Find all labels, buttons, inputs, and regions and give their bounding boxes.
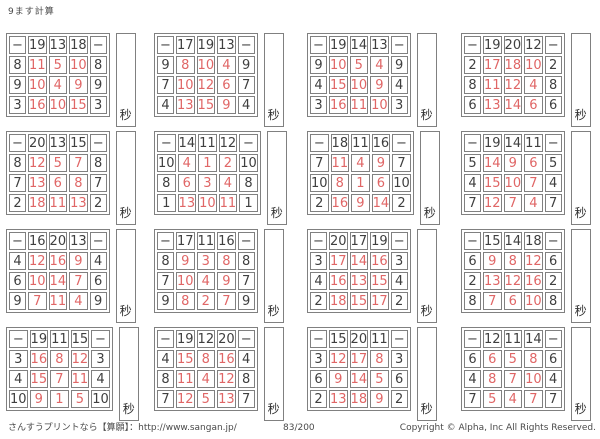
answer-cell: 6	[524, 154, 543, 172]
answer-cell: 13	[69, 194, 88, 212]
subtraction-table: −121114−6658648710475477	[461, 327, 565, 411]
given-number-cell: 3	[91, 350, 110, 368]
answer-cell: 12	[176, 390, 195, 408]
seconds-box: 秒	[571, 131, 591, 225]
answer-cell: 6	[372, 174, 391, 192]
minus-operator-cell: −	[391, 330, 408, 348]
footer-site-text: さんすうプリントなら【算願】：http://www.sangan.jp/	[8, 420, 237, 433]
seconds-box: 秒	[417, 229, 437, 323]
answer-cell: 5	[504, 350, 523, 368]
answer-cell: 12	[28, 252, 47, 270]
answer-cell: 9	[483, 252, 502, 270]
given-number-cell: 4	[310, 272, 327, 290]
answer-cell: 7	[217, 292, 236, 310]
seconds-label: 秒	[575, 106, 587, 123]
given-number-cell: 20	[350, 330, 369, 348]
answer-cell: 7	[69, 154, 88, 172]
answer-cell: 12	[504, 272, 523, 290]
answer-cell: 16	[28, 96, 47, 114]
seconds-label: 秒	[120, 204, 132, 221]
answer-cell: 6	[178, 174, 197, 192]
seconds-box: 秒	[267, 131, 287, 225]
answer-cell: 7	[483, 292, 502, 310]
answer-cell: 10	[350, 76, 369, 94]
minus-operator-cell: −	[157, 232, 174, 250]
answer-cell: 9	[504, 154, 523, 172]
answer-cell: 10	[49, 96, 68, 114]
given-number-cell: 11	[197, 232, 216, 250]
minus-operator-cell: −	[391, 36, 408, 54]
minus-operator-cell: −	[238, 36, 255, 54]
answer-cell: 10	[197, 56, 216, 74]
subtraction-table: −181116−71149710816102169142	[307, 131, 414, 215]
answer-cell: 18	[504, 56, 523, 74]
given-number-cell: 9	[9, 76, 26, 94]
given-number-cell: 13	[49, 36, 68, 54]
given-number-cell: 12	[197, 330, 216, 348]
answer-cell: 10	[198, 194, 217, 212]
given-number-cell: 8	[239, 174, 258, 192]
given-number-cell: 2	[310, 194, 329, 212]
answer-cell: 13	[483, 96, 502, 114]
answer-cell: 8	[524, 350, 543, 368]
answer-cell: 7	[524, 174, 543, 192]
minus-operator-cell: −	[310, 330, 327, 348]
given-number-cell: 19	[483, 36, 502, 54]
minus-operator-cell: −	[9, 232, 26, 250]
given-number-cell: 8	[545, 76, 562, 94]
answer-cell: 16	[30, 350, 49, 368]
answer-cell: 2	[197, 292, 216, 310]
answer-cell: 12	[71, 350, 90, 368]
seconds-box: 秒	[571, 327, 591, 421]
answer-cell: 14	[350, 370, 369, 388]
answer-cell: 7	[524, 390, 543, 408]
answer-cell: 4	[504, 390, 523, 408]
given-number-cell: 8	[157, 370, 174, 388]
given-number-cell: 18	[331, 134, 350, 152]
given-number-cell: 12	[483, 330, 502, 348]
answer-cell: 17	[329, 252, 348, 270]
answer-cell: 7	[504, 194, 523, 212]
page-number: 83/200	[283, 423, 315, 433]
given-number-cell: 17	[176, 36, 195, 54]
given-number-cell: 4	[238, 96, 255, 114]
given-number-cell: 6	[90, 272, 107, 290]
minus-operator-cell: −	[464, 36, 481, 54]
given-number-cell: 15	[69, 134, 88, 152]
given-number-cell: 2	[9, 194, 26, 212]
seconds-label: 秒	[424, 204, 436, 221]
answer-cell: 8	[370, 350, 389, 368]
given-number-cell: 19	[329, 36, 348, 54]
subtraction-table: −201315−81257871368721811132	[6, 131, 110, 215]
given-number-cell: 9	[157, 56, 174, 74]
given-number-cell: 4	[391, 76, 408, 94]
answer-cell: 8	[197, 350, 216, 368]
given-number-cell: 19	[176, 330, 195, 348]
given-number-cell: 4	[238, 350, 255, 368]
answer-cell: 10	[28, 272, 47, 290]
problem-block: −121114−6658648710475477秒	[461, 327, 600, 425]
answer-cell: 15	[483, 174, 502, 192]
answer-cell: 10	[524, 370, 543, 388]
minus-operator-cell: −	[157, 134, 176, 152]
minus-operator-cell: −	[9, 134, 26, 152]
given-number-cell: 7	[90, 174, 107, 192]
seconds-box: 秒	[264, 327, 284, 421]
minus-operator-cell: −	[90, 232, 107, 250]
answer-cell: 17	[483, 56, 502, 74]
given-number-cell: 14	[524, 330, 543, 348]
minus-operator-cell: −	[464, 232, 481, 250]
given-number-cell: 8	[464, 76, 481, 94]
given-number-cell: 7	[9, 174, 26, 192]
answer-cell: 13	[329, 390, 348, 408]
answer-cell: 4	[49, 76, 68, 94]
minus-operator-cell: −	[310, 36, 327, 54]
given-number-cell: 20	[28, 134, 47, 152]
problem-block: −191318−811510891049931610153秒	[6, 33, 154, 131]
answer-cell: 7	[69, 272, 88, 290]
given-number-cell: 3	[391, 350, 408, 368]
subtraction-table: −151418−69812621312162876108	[461, 229, 565, 313]
answer-cell: 8	[217, 252, 236, 270]
given-number-cell: 7	[238, 272, 255, 290]
given-number-cell: 11	[198, 134, 217, 152]
given-number-cell: 14	[504, 232, 523, 250]
given-number-cell: 9	[310, 56, 327, 74]
given-number-cell: 12	[524, 36, 543, 54]
given-number-cell: 6	[545, 350, 562, 368]
answer-cell: 1	[50, 390, 69, 408]
given-number-cell: 3	[310, 96, 327, 114]
given-number-cell: 16	[372, 134, 391, 152]
given-number-cell: 1	[239, 194, 258, 212]
seconds-box: 秒	[264, 33, 284, 127]
answer-cell: 11	[350, 96, 369, 114]
given-number-cell: 2	[464, 272, 481, 290]
given-number-cell: 15	[483, 232, 502, 250]
seconds-label: 秒	[575, 302, 587, 319]
minus-operator-cell: −	[157, 330, 174, 348]
given-number-cell: 2	[464, 56, 481, 74]
answer-cell: 7	[28, 292, 47, 310]
answer-cell: 11	[483, 76, 502, 94]
minus-operator-cell: −	[239, 134, 258, 152]
given-number-cell: 9	[391, 56, 408, 74]
answer-cell: 6	[504, 292, 523, 310]
answer-cell: 13	[350, 272, 369, 290]
seconds-label: 秒	[268, 302, 280, 319]
answer-cell: 12	[504, 76, 523, 94]
copyright-text: Copyright © Alpha, Inc All Rights Reserv…	[400, 423, 596, 433]
answer-cell: 10	[329, 56, 348, 74]
given-number-cell: 19	[30, 330, 49, 348]
seconds-label: 秒	[268, 106, 280, 123]
answer-cell: 14	[372, 194, 391, 212]
answer-cell: 5	[197, 390, 216, 408]
given-number-cell: 8	[90, 154, 107, 172]
answer-cell: 14	[483, 154, 502, 172]
answer-cell: 9	[351, 194, 370, 212]
answer-cell: 4	[197, 370, 216, 388]
problem-block: −191411−5149654151074712747秒	[461, 131, 600, 229]
answer-cell: 8	[331, 174, 350, 192]
given-number-cell: 4	[464, 370, 481, 388]
subtraction-table: −201719−317141634161315421815172	[307, 229, 411, 313]
answer-cell: 12	[217, 370, 236, 388]
answer-cell: 13	[217, 390, 236, 408]
answer-cell: 4	[524, 194, 543, 212]
given-number-cell: 20	[329, 232, 348, 250]
given-number-cell: 6	[545, 96, 562, 114]
given-number-cell: 14	[504, 134, 523, 152]
given-number-cell: 11	[524, 134, 543, 152]
given-number-cell: 10	[392, 174, 411, 192]
answer-cell: 16	[329, 96, 348, 114]
given-number-cell: 4	[9, 370, 28, 388]
subtraction-table: −141112−10412108634811310111	[154, 131, 261, 215]
answer-cell: 18	[329, 292, 348, 310]
minus-operator-cell: −	[91, 330, 110, 348]
answer-cell: 11	[49, 292, 68, 310]
answer-cell: 9	[30, 390, 49, 408]
answer-cell: 11	[219, 194, 238, 212]
subtraction-table: −152011−31217836914562131892	[307, 327, 411, 411]
given-number-cell: 9	[9, 292, 26, 310]
answer-cell: 9	[329, 370, 348, 388]
answer-cell: 1	[351, 174, 370, 192]
given-number-cell: 19	[483, 134, 502, 152]
minus-operator-cell: −	[9, 330, 28, 348]
answer-cell: 18	[350, 390, 369, 408]
given-number-cell: 13	[370, 36, 389, 54]
problem-block: −141112−10412108634811310111秒	[154, 131, 307, 229]
given-number-cell: 2	[545, 56, 562, 74]
answer-cell: 5	[350, 56, 369, 74]
answer-cell: 16	[370, 252, 389, 270]
answer-cell: 16	[329, 272, 348, 290]
answer-cell: 5	[483, 390, 502, 408]
answer-cell: 8	[176, 292, 195, 310]
answer-cell: 16	[217, 350, 236, 368]
given-number-cell: 7	[464, 390, 481, 408]
given-number-cell: 11	[50, 330, 69, 348]
answer-cell: 10	[28, 76, 47, 94]
answer-cell: 8	[50, 350, 69, 368]
problem-block: −181116−71149710816102169142秒	[307, 131, 461, 229]
minus-operator-cell: −	[90, 36, 107, 54]
given-number-cell: 5	[545, 154, 562, 172]
given-number-cell: 6	[464, 96, 481, 114]
problem-block: −191220−415816481141287125137秒	[154, 327, 307, 425]
minus-operator-cell: −	[238, 232, 255, 250]
answer-cell: 4	[370, 56, 389, 74]
minus-operator-cell: −	[464, 134, 481, 152]
seconds-label: 秒	[575, 400, 587, 417]
answer-cell: 11	[28, 56, 47, 74]
minus-operator-cell: −	[310, 134, 329, 152]
answer-cell: 9	[176, 252, 195, 270]
answer-cell: 8	[483, 370, 502, 388]
given-number-cell: 11	[351, 134, 370, 152]
answer-cell: 12	[483, 194, 502, 212]
minus-operator-cell: −	[545, 232, 562, 250]
given-number-cell: 6	[464, 252, 481, 270]
answer-cell: 11	[331, 154, 350, 172]
given-number-cell: 9	[157, 292, 174, 310]
answer-cell: 2	[219, 154, 238, 172]
answer-cell: 10	[524, 56, 543, 74]
given-number-cell: 20	[504, 36, 523, 54]
seconds-label: 秒	[421, 302, 433, 319]
given-number-cell: 10	[310, 174, 329, 192]
answer-cell: 8	[504, 252, 523, 270]
given-number-cell: 8	[545, 292, 562, 310]
given-number-cell: 4	[9, 252, 26, 270]
answer-cell: 11	[176, 370, 195, 388]
given-number-cell: 4	[391, 272, 408, 290]
answer-cell: 15	[370, 272, 389, 290]
given-number-cell: 9	[90, 292, 107, 310]
answer-cell: 10	[370, 96, 389, 114]
subtraction-table: −192012−2171810281112486131466	[461, 33, 565, 117]
answer-cell: 9	[372, 154, 391, 172]
given-number-cell: 7	[157, 390, 174, 408]
answer-cell: 13	[176, 96, 195, 114]
subtraction-table: −191318−811510891049931610153	[6, 33, 110, 117]
given-number-cell: 5	[464, 154, 481, 172]
seconds-label: 秒	[268, 400, 280, 417]
answer-cell: 7	[504, 370, 523, 388]
answer-cell: 4	[524, 76, 543, 94]
problem-block: −201315−81257871368721811132秒	[6, 131, 154, 229]
subtraction-table: −191411−5149654151074712747	[461, 131, 565, 215]
seconds-label: 秒	[271, 204, 283, 221]
answer-cell: 9	[370, 76, 389, 94]
answer-cell: 15	[69, 96, 88, 114]
given-number-cell: 7	[310, 154, 329, 172]
given-number-cell: 11	[370, 330, 389, 348]
subtraction-table: −162013−41216946101476971149	[6, 229, 110, 313]
answer-cell: 16	[331, 194, 350, 212]
given-number-cell: 2	[310, 292, 327, 310]
given-number-cell: 8	[90, 56, 107, 74]
given-number-cell: 8	[157, 252, 174, 270]
seconds-box: 秒	[116, 229, 136, 323]
answer-cell: 15	[176, 350, 195, 368]
page-title: 9ます計算	[8, 4, 55, 17]
given-number-cell: 9	[238, 56, 255, 74]
given-number-cell: 2	[310, 390, 327, 408]
answer-cell: 3	[198, 174, 217, 192]
given-number-cell: 4	[545, 174, 562, 192]
answer-cell: 11	[49, 194, 68, 212]
given-number-cell: 8	[157, 174, 176, 192]
given-number-cell: 9	[238, 292, 255, 310]
answer-cell: 4	[219, 174, 238, 192]
given-number-cell: 7	[238, 76, 255, 94]
answer-cell: 9	[69, 252, 88, 270]
given-number-cell: 15	[71, 330, 90, 348]
subtraction-table: −191220−415816481141287125137	[154, 327, 258, 411]
answer-cell: 14	[49, 272, 68, 290]
seconds-box: 秒	[417, 327, 437, 421]
given-number-cell: 20	[217, 330, 236, 348]
given-number-cell: 2	[391, 292, 408, 310]
given-number-cell: 4	[545, 370, 562, 388]
given-number-cell: 9	[90, 76, 107, 94]
answer-cell: 1	[198, 154, 217, 172]
given-number-cell: 19	[28, 36, 47, 54]
answer-cell: 10	[504, 174, 523, 192]
answer-cell: 5	[71, 390, 90, 408]
subtraction-table: −191413−910549415109431611103	[307, 33, 411, 117]
given-number-cell: 6	[310, 370, 327, 388]
given-number-cell: 2	[545, 272, 562, 290]
answer-cell: 3	[197, 252, 216, 270]
given-number-cell: 4	[464, 174, 481, 192]
given-number-cell: 3	[9, 96, 26, 114]
given-number-cell: 8	[9, 154, 26, 172]
subtraction-table: −171913−98104971012674131594	[154, 33, 258, 117]
minus-operator-cell: −	[464, 330, 481, 348]
seconds-label: 秒	[421, 106, 433, 123]
subtraction-table: −171116−8938871049798279	[154, 229, 258, 313]
given-number-cell: 13	[69, 232, 88, 250]
minus-operator-cell: −	[9, 36, 26, 54]
seconds-label: 秒	[575, 204, 587, 221]
given-number-cell: 4	[157, 350, 174, 368]
seconds-box: 秒	[571, 229, 591, 323]
answer-cell: 14	[504, 96, 523, 114]
problem-block: −192012−2171810281112486131466秒	[461, 33, 600, 131]
worksheet-grid: −191318−811510891049931610153秒−171913−98…	[6, 33, 600, 425]
given-number-cell: 13	[49, 134, 68, 152]
given-number-cell: 11	[504, 330, 523, 348]
answer-cell: 4	[217, 56, 236, 74]
answer-cell: 13	[28, 174, 47, 192]
given-number-cell: 17	[176, 232, 195, 250]
answer-cell: 14	[350, 252, 369, 270]
given-number-cell: 16	[28, 232, 47, 250]
problem-block: −191115−316812341571141091510秒	[6, 327, 154, 425]
problem-block: −162013−41216946101476971149秒	[6, 229, 154, 327]
seconds-label: 秒	[421, 400, 433, 417]
answer-cell: 17	[350, 350, 369, 368]
given-number-cell: 8	[464, 292, 481, 310]
given-number-cell: 2	[391, 390, 408, 408]
given-number-cell: 13	[217, 36, 236, 54]
answer-cell: 10	[524, 292, 543, 310]
minus-operator-cell: −	[391, 232, 408, 250]
answer-cell: 4	[351, 154, 370, 172]
given-number-cell: 3	[9, 350, 28, 368]
seconds-label: 秒	[120, 106, 132, 123]
given-number-cell: 8	[9, 56, 26, 74]
answer-cell: 15	[30, 370, 49, 388]
answer-cell: 6	[524, 96, 543, 114]
seconds-box: 秒	[116, 33, 136, 127]
given-number-cell: 2	[90, 194, 107, 212]
answer-cell: 12	[329, 350, 348, 368]
answer-cell: 10	[69, 56, 88, 74]
problem-block: −151418−69812621312162876108秒	[461, 229, 600, 327]
given-number-cell: 4	[90, 252, 107, 270]
answer-cell: 12	[524, 252, 543, 270]
problem-block: −171913−98104971012674131594秒	[154, 33, 307, 131]
